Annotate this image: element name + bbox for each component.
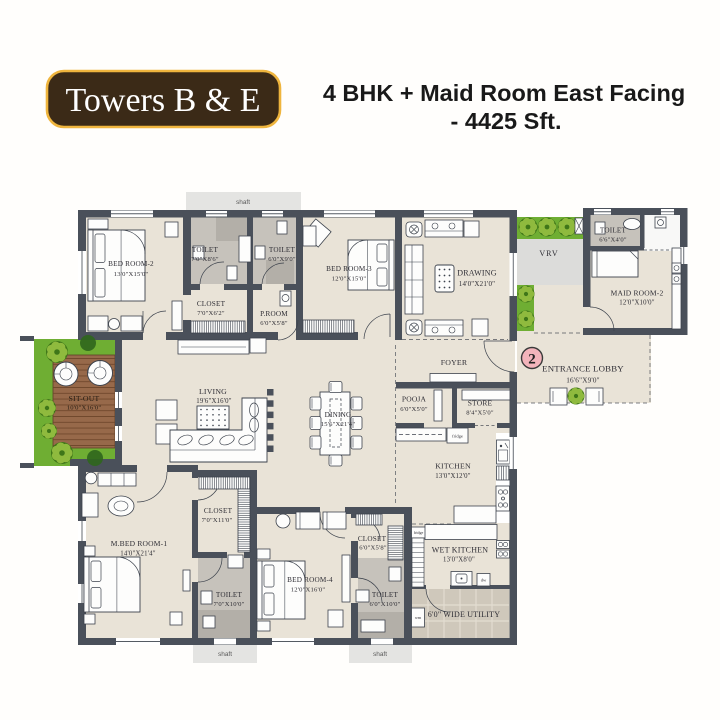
svg-text:STORE: STORE [468,399,493,408]
svg-text:BED ROOM-4: BED ROOM-4 [287,576,333,584]
svg-text:6'0"X10'0": 6'0"X10'0" [369,601,400,608]
svg-text:DRAWING: DRAWING [457,269,496,278]
svg-text:- 4425 Sft.: - 4425 Sft. [450,108,561,134]
svg-text:14'0"X21'0": 14'0"X21'0" [459,280,496,288]
svg-text:13'0"X12'0": 13'0"X12'0" [435,473,471,480]
svg-text:wm: wm [415,615,422,620]
svg-text:WET KITCHEN: WET KITCHEN [432,546,489,555]
svg-text:7'0"X11'0": 7'0"X11'0" [202,517,233,524]
svg-text:2: 2 [528,352,536,368]
svg-text:TOILET: TOILET [269,246,296,254]
svg-text:ENTRANCE LOBBY: ENTRANCE LOBBY [542,364,624,374]
svg-text:dw: dw [481,578,487,583]
svg-text:TOILET: TOILET [600,227,627,235]
svg-text:TOILET: TOILET [192,246,219,254]
svg-text:12'0"X16'0": 12'0"X16'0" [291,587,326,594]
svg-text:SIT-OUT: SIT-OUT [69,394,100,403]
svg-text:shaft: shaft [236,199,250,206]
svg-text:CLOSET: CLOSET [197,300,226,308]
svg-text:19'6"X16'0": 19'6"X16'0" [196,398,232,405]
svg-text:7'0"X10'0": 7'0"X10'0" [213,601,244,608]
svg-text:POOJA: POOJA [402,395,427,404]
svg-text:14'0"X21'4": 14'0"X21'4" [120,551,156,558]
svg-text:6'0"X5'8": 6'0"X5'8" [359,545,387,552]
svg-text:4 BHK + Maid Room East Facin: 4 BHK + Maid Room East Facing [323,80,685,106]
svg-text:7'0"X6'2": 7'0"X6'2" [197,310,225,317]
svg-text:TOILET: TOILET [216,591,243,599]
svg-text:6'0"X5'8": 6'0"X5'8" [260,320,288,327]
svg-text:shaft: shaft [218,651,232,658]
svg-text:P.ROOM: P.ROOM [260,310,288,318]
svg-text:6'0"X5'0": 6'0"X5'0" [400,406,428,413]
svg-text:CLOSET: CLOSET [204,507,233,515]
svg-text:BED ROOM-2: BED ROOM-2 [108,260,154,268]
svg-text:6'0"X9'0": 6'0"X9'0" [268,256,296,263]
svg-text:fridge: fridge [414,530,424,535]
svg-text:DINING: DINING [325,411,352,419]
svg-text:13'0"X8'0": 13'0"X8'0" [443,557,475,564]
svg-text:6'6"X4'0": 6'6"X4'0" [599,237,627,244]
svg-text:15'6"X21'4": 15'6"X21'4" [321,421,356,428]
svg-text:13'0"X15'0": 13'0"X15'0" [114,271,149,278]
svg-text:CLOSET: CLOSET [358,535,387,543]
svg-text:10'0"X16'0": 10'0"X16'0" [67,405,102,412]
svg-text:fridge: fridge [452,434,463,439]
svg-text:VRV: VRV [539,249,558,258]
svg-text:BED ROOM-3: BED ROOM-3 [326,265,372,273]
svg-text:Towers B & E: Towers B & E [66,82,261,119]
svg-text:6'0" WIDE UTILITY: 6'0" WIDE UTILITY [428,610,500,619]
svg-text:12'0"X10'0": 12'0"X10'0" [619,300,655,307]
svg-text:KITCHEN: KITCHEN [435,462,471,471]
svg-text:8'4"X5'0": 8'4"X5'0" [466,410,494,417]
svg-text:TOILET: TOILET [372,591,399,599]
svg-text:FOYER: FOYER [441,358,468,367]
svg-text:M.BED ROOM-1: M.BED ROOM-1 [111,539,168,548]
svg-text:7'0"X8'6": 7'0"X8'6" [191,256,219,263]
svg-text:MAID ROOM-2: MAID ROOM-2 [611,289,664,298]
svg-text:LIVING: LIVING [199,387,227,396]
svg-text:12'0"X15'0": 12'0"X15'0" [332,276,367,283]
svg-text:shaft: shaft [373,651,387,658]
svg-text:16'6"X9'0": 16'6"X9'0" [566,377,600,385]
